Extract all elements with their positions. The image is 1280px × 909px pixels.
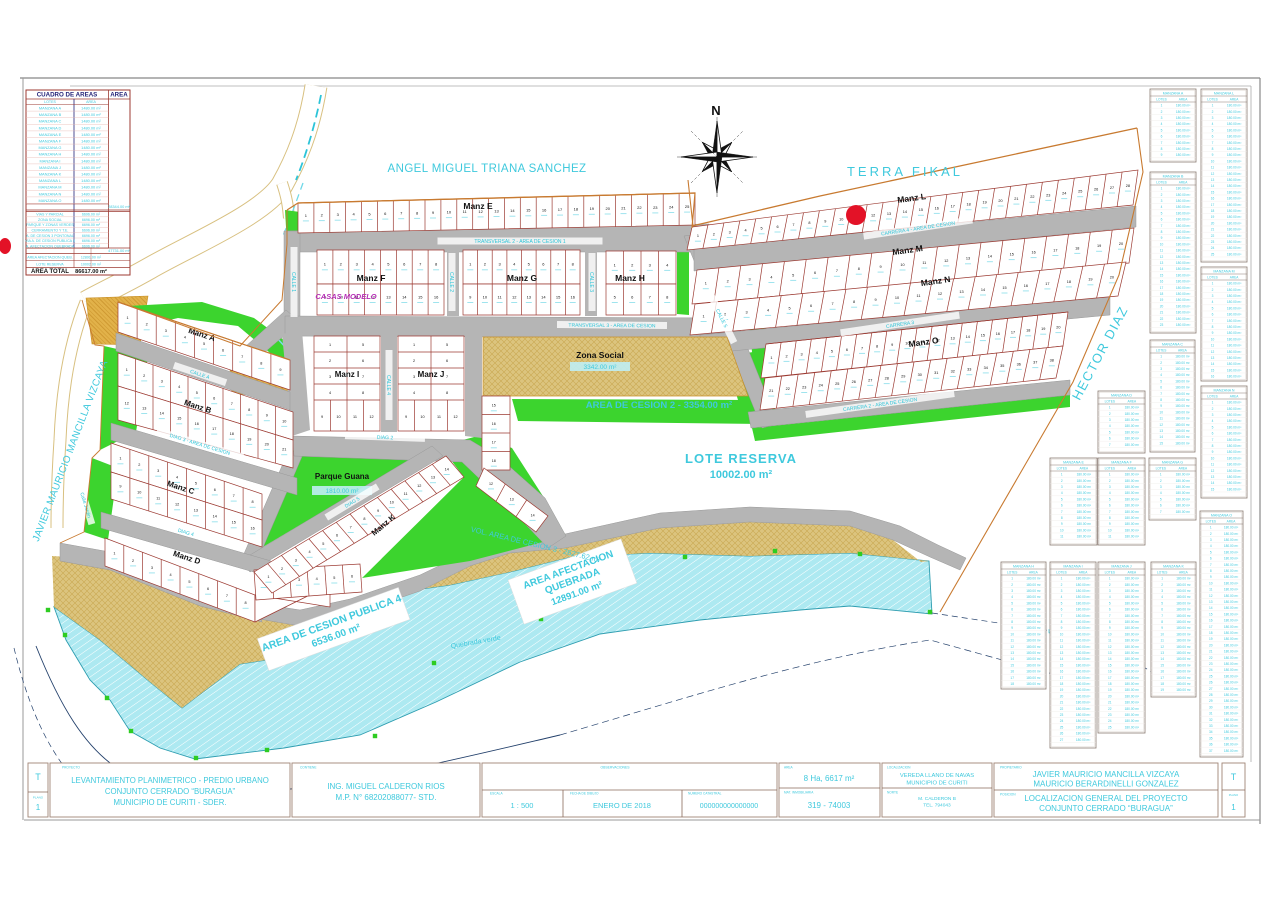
svg-text:2: 2 — [785, 354, 787, 358]
svg-text:180.00 m²: 180.00 m² — [1175, 417, 1189, 421]
svg-text:4: 4 — [1160, 491, 1162, 495]
svg-text:8: 8 — [446, 391, 448, 395]
svg-text:180.00 m²: 180.00 m² — [1224, 705, 1238, 709]
svg-text:1480.00 m²: 1480.00 m² — [81, 139, 101, 144]
svg-text:13: 13 — [510, 498, 514, 502]
svg-text:13: 13 — [527, 294, 532, 299]
svg-text:7: 7 — [1161, 614, 1163, 618]
svg-text:5: 5 — [1161, 211, 1163, 215]
svg-text:180.00 m²: 180.00 m² — [1176, 497, 1190, 501]
svg-text:5: 5 — [1160, 497, 1162, 501]
svg-text:180.00 m²: 180.00 m² — [1175, 410, 1189, 414]
svg-text:FECHA DE DIBUJO: FECHA DE DIBUJO — [570, 792, 599, 796]
svg-text:19: 19 — [1041, 327, 1045, 331]
svg-text:180.00 m²: 180.00 m² — [1224, 526, 1238, 530]
svg-text:TRANSVERSAL 3 - AREA DE CESION: TRANSVERSAL 3 - AREA DE CESION — [568, 323, 656, 330]
svg-text:9: 9 — [279, 368, 281, 372]
svg-text:180.00 m²: 180.00 m² — [1176, 657, 1190, 661]
svg-text:7: 7 — [1210, 563, 1212, 567]
svg-text:MANZANA I: MANZANA I — [40, 158, 61, 163]
svg-text:180.00 m²: 180.00 m² — [1227, 184, 1241, 188]
svg-text:13: 13 — [1159, 429, 1163, 433]
svg-text:11: 11 — [437, 415, 441, 419]
svg-text:31: 31 — [934, 371, 938, 375]
svg-text:4: 4 — [1011, 595, 1013, 599]
svg-text:15: 15 — [1209, 612, 1213, 616]
svg-text:MANZANA K: MANZANA K — [1163, 564, 1184, 568]
svg-text:4: 4 — [176, 475, 178, 479]
svg-text:TEL. 794043: TEL. 794043 — [923, 803, 951, 809]
svg-text:2: 2 — [1161, 110, 1163, 114]
svg-text:A. DE CESION 3 PONTONAL: A. DE CESION 3 PONTONAL — [26, 234, 74, 238]
svg-text:180.00 m²: 180.00 m² — [1076, 589, 1090, 593]
svg-text:180.00 m²: 180.00 m² — [1125, 632, 1139, 636]
svg-text:18: 18 — [1160, 682, 1164, 686]
svg-text:180.00 m²: 180.00 m² — [1224, 724, 1238, 728]
svg-text:7: 7 — [792, 223, 794, 227]
svg-text:12: 12 — [1209, 594, 1213, 598]
svg-text:5: 5 — [322, 542, 324, 546]
svg-text:180.00 m²: 180.00 m² — [1224, 600, 1238, 604]
svg-text:6: 6 — [336, 534, 338, 538]
svg-text:6696.00 m²: 6696.00 m² — [82, 234, 101, 238]
svg-text:24: 24 — [669, 204, 674, 209]
svg-text:1: 1 — [1160, 473, 1162, 477]
svg-text:14: 14 — [1160, 657, 1164, 661]
svg-text:AREA: AREA — [1127, 570, 1137, 574]
svg-text:180.00 m²: 180.00 m² — [1026, 657, 1040, 661]
svg-text:7: 7 — [836, 269, 838, 273]
svg-text:180.00 m²: 180.00 m² — [1224, 625, 1238, 629]
svg-text:15: 15 — [1211, 487, 1215, 491]
svg-text:26: 26 — [1209, 681, 1213, 685]
svg-text:000000000000000: 000000000000000 — [700, 803, 759, 810]
svg-text:180.00 m²: 180.00 m² — [1076, 626, 1090, 630]
svg-text:180.00 m²: 180.00 m² — [1227, 172, 1241, 176]
svg-text:11: 11 — [404, 492, 408, 496]
svg-text:12: 12 — [1060, 645, 1064, 649]
svg-text:180.00 m²: 180.00 m² — [1227, 178, 1241, 182]
svg-text:13: 13 — [494, 208, 499, 213]
svg-text:VIAS Y PARCIAL: VIAS Y PARCIAL — [36, 213, 64, 217]
svg-text:180.00 m²: 180.00 m² — [1224, 743, 1238, 747]
svg-text:29: 29 — [901, 375, 905, 379]
svg-text:1810.00 m²: 1810.00 m² — [326, 488, 360, 495]
svg-text:1: 1 — [1061, 577, 1063, 581]
svg-text:23: 23 — [1211, 240, 1215, 244]
svg-text:16: 16 — [996, 332, 1000, 336]
svg-text:16: 16 — [1211, 197, 1215, 201]
svg-text:180.00 m²: 180.00 m² — [1026, 620, 1040, 624]
svg-text:180.00 m²: 180.00 m² — [1227, 252, 1241, 256]
svg-text:4: 4 — [1212, 300, 1214, 304]
svg-text:16: 16 — [1160, 280, 1164, 284]
svg-text:180.00 m²: 180.00 m² — [1224, 544, 1238, 548]
svg-text:1: 1 — [1109, 577, 1111, 581]
svg-text:180.00 m²: 180.00 m² — [1077, 504, 1091, 508]
svg-text:180.00 m²: 180.00 m² — [1125, 645, 1139, 649]
svg-text:25: 25 — [1209, 674, 1213, 678]
svg-text:180.00 m²: 180.00 m² — [1224, 594, 1238, 598]
svg-text:180.00 m²: 180.00 m² — [1176, 261, 1190, 265]
svg-text:POSICION: POSICION — [1000, 793, 1016, 797]
svg-text:11: 11 — [1011, 639, 1015, 643]
svg-text:180.00 m²: 180.00 m² — [1176, 193, 1190, 197]
svg-text:20: 20 — [1056, 326, 1060, 330]
svg-text:4: 4 — [770, 275, 772, 279]
svg-text:9: 9 — [377, 509, 379, 513]
svg-text:8: 8 — [853, 300, 855, 304]
svg-text:AREA: AREA — [1179, 570, 1189, 574]
svg-text:180.00 m²: 180.00 m² — [1227, 319, 1241, 323]
svg-text:180.00 m²: 180.00 m² — [1176, 485, 1190, 489]
svg-text:180.00 m²: 180.00 m² — [1076, 670, 1090, 674]
svg-text:NORTE: NORTE — [887, 791, 898, 795]
svg-text:3: 3 — [161, 380, 163, 384]
svg-text:180.00 m²: 180.00 m² — [1227, 481, 1241, 485]
svg-text:9: 9 — [1061, 626, 1063, 630]
svg-text:15: 15 — [1211, 368, 1215, 372]
svg-text:27: 27 — [1209, 687, 1213, 691]
svg-text:15: 15 — [1002, 286, 1006, 290]
svg-text:6: 6 — [222, 348, 224, 352]
svg-text:18: 18 — [574, 207, 579, 212]
svg-text:180.00 m²: 180.00 m² — [1076, 694, 1090, 698]
svg-text:180.00 m²: 180.00 m² — [1227, 190, 1241, 194]
svg-text:25: 25 — [685, 204, 690, 209]
svg-text:LOTE RESERVA: LOTE RESERVA — [36, 263, 64, 267]
svg-text:1: 1 — [413, 343, 415, 347]
svg-text:7: 7 — [1212, 438, 1214, 442]
svg-text:Manz G: Manz G — [507, 273, 538, 283]
svg-text:5: 5 — [195, 482, 197, 486]
svg-text:180.00 m²: 180.00 m² — [1026, 639, 1040, 643]
svg-text:MANZANA M: MANZANA M — [1213, 269, 1234, 273]
svg-text:180.00 m²: 180.00 m² — [1227, 469, 1241, 473]
svg-text:23: 23 — [1209, 662, 1213, 666]
svg-text:4: 4 — [309, 550, 311, 554]
svg-text:10002.00 m²: 10002.00 m² — [710, 469, 773, 481]
svg-text:ENERO DE 2018: ENERO DE 2018 — [593, 801, 651, 810]
svg-text:3: 3 — [1161, 116, 1163, 120]
svg-text:5: 5 — [761, 227, 763, 231]
svg-text:180.00 m²: 180.00 m² — [1176, 141, 1190, 145]
svg-text:180.00 m²: 180.00 m² — [1227, 438, 1241, 442]
svg-text:180.00 m²: 180.00 m² — [1176, 479, 1190, 483]
svg-text:Parque Guana: Parque Guana — [315, 472, 370, 481]
svg-text:13: 13 — [142, 406, 146, 410]
svg-text:21: 21 — [1160, 311, 1164, 315]
svg-text:ING. MIGUEL CALDERON RIOS: ING. MIGUEL CALDERON RIOS — [327, 782, 445, 791]
svg-text:180.00 m²: 180.00 m² — [1125, 682, 1139, 686]
svg-text:180.00 m²: 180.00 m² — [1125, 657, 1139, 661]
svg-text:30: 30 — [1209, 705, 1213, 709]
svg-text:180.00 m²: 180.00 m² — [1076, 645, 1090, 649]
svg-text:4: 4 — [1212, 122, 1214, 126]
svg-text:7: 7 — [233, 494, 235, 498]
svg-text:VEREDA LLANO DE NAVAS: VEREDA LLANO DE NAVAS — [900, 773, 974, 779]
svg-text:32: 32 — [1209, 718, 1213, 722]
svg-text:15: 15 — [526, 208, 531, 213]
svg-text:180.00 m²: 180.00 m² — [1125, 430, 1139, 434]
svg-text:30: 30 — [918, 373, 922, 377]
svg-text:35: 35 — [1209, 736, 1213, 740]
svg-text:180.00 m²: 180.00 m² — [1125, 479, 1139, 483]
svg-text:16: 16 — [1024, 284, 1028, 288]
svg-text:9: 9 — [405, 415, 407, 419]
svg-text:8: 8 — [363, 517, 365, 521]
svg-text:2: 2 — [132, 559, 134, 563]
svg-text:14: 14 — [1211, 184, 1215, 188]
svg-text:180.00 m²: 180.00 m² — [1026, 608, 1040, 612]
svg-text:OBSERVACIONES: OBSERVACIONES — [600, 766, 630, 770]
svg-text:14: 14 — [1010, 657, 1014, 661]
svg-text:DIAG 2: DIAG 2 — [377, 435, 394, 442]
svg-text:180.00 m²: 180.00 m² — [1224, 643, 1238, 647]
svg-text:180.00 m²: 180.00 m² — [1227, 197, 1241, 201]
svg-text:13: 13 — [1108, 651, 1112, 655]
svg-text:8: 8 — [1212, 444, 1214, 448]
svg-text:7: 7 — [231, 402, 233, 406]
svg-text:9: 9 — [1011, 626, 1013, 630]
svg-text:4: 4 — [184, 336, 186, 340]
svg-text:1480.00 m²: 1480.00 m² — [81, 112, 101, 117]
svg-text:180.00 m²: 180.00 m² — [1176, 230, 1190, 234]
svg-text:13: 13 — [1060, 651, 1064, 655]
svg-text:PROPIETARIO: PROPIETARIO — [1000, 766, 1022, 770]
svg-text:7: 7 — [1061, 614, 1063, 618]
svg-text:180.00 m²: 180.00 m² — [1224, 712, 1238, 716]
svg-text:180.00 m²: 180.00 m² — [1125, 437, 1139, 441]
svg-text:180.00 m²: 180.00 m² — [1176, 224, 1190, 228]
svg-text:10: 10 — [483, 294, 488, 299]
svg-text:180.00 m²: 180.00 m² — [1125, 577, 1139, 581]
svg-text:6: 6 — [810, 304, 812, 308]
svg-text:18: 18 — [492, 459, 496, 463]
svg-text:13: 13 — [1211, 178, 1215, 182]
svg-text:5: 5 — [1011, 601, 1013, 605]
svg-text:1: 1 — [1231, 803, 1236, 812]
svg-text:19: 19 — [1088, 278, 1092, 282]
svg-text:MANZANA C: MANZANA C — [39, 119, 62, 124]
svg-text:180.00 m²: 180.00 m² — [1076, 583, 1090, 587]
svg-text:180.00 m²: 180.00 m² — [1077, 522, 1091, 526]
svg-text:14: 14 — [1211, 362, 1215, 366]
svg-text:9: 9 — [1109, 626, 1111, 630]
svg-text:14: 14 — [160, 412, 164, 416]
svg-text:34: 34 — [984, 366, 988, 370]
svg-text:180.00 m²: 180.00 m² — [1227, 306, 1241, 310]
svg-text:3: 3 — [1161, 199, 1163, 203]
svg-text:4: 4 — [1109, 491, 1111, 495]
svg-text:20: 20 — [1211, 221, 1215, 225]
svg-text:180.00 m²: 180.00 m² — [1176, 286, 1190, 290]
svg-text:1: 1 — [703, 314, 705, 318]
svg-text:8: 8 — [1212, 147, 1214, 151]
svg-text:MUNICIPIO DE CURITI - SDER.: MUNICIPIO DE CURITI - SDER. — [113, 798, 226, 807]
svg-text:17: 17 — [492, 441, 496, 445]
svg-text:180.00 m²: 180.00 m² — [1125, 473, 1139, 477]
svg-text:1: 1 — [1161, 577, 1163, 581]
svg-text:32: 32 — [951, 369, 955, 373]
svg-text:1: 1 — [1212, 104, 1214, 108]
svg-text:12: 12 — [944, 259, 948, 263]
svg-text:MAT. INMOBILIARIA: MAT. INMOBILIARIA — [784, 791, 814, 795]
svg-text:22: 22 — [1160, 317, 1164, 321]
svg-text:CONJUNTO CERRADO “BURAGUA”: CONJUNTO CERRADO “BURAGUA” — [1039, 804, 1173, 813]
svg-text:14: 14 — [1108, 657, 1112, 661]
svg-text:180.00 m²: 180.00 m² — [1227, 432, 1241, 436]
svg-text:5: 5 — [1161, 128, 1163, 132]
svg-text:AREA: AREA — [784, 766, 794, 770]
svg-text:12: 12 — [453, 415, 457, 419]
svg-text:9: 9 — [874, 298, 876, 302]
svg-text:11: 11 — [922, 261, 926, 265]
svg-text:3342.00 m²: 3342.00 m² — [584, 364, 618, 371]
svg-text:1: 1 — [1210, 526, 1212, 530]
svg-text:10: 10 — [1159, 410, 1163, 414]
svg-text:13: 13 — [887, 212, 891, 216]
svg-text:180.00 m²: 180.00 m² — [1227, 356, 1241, 360]
svg-text:4: 4 — [1212, 419, 1214, 423]
svg-text:180.00 m²: 180.00 m² — [1227, 141, 1241, 145]
svg-text:1480.00 m²: 1480.00 m² — [81, 191, 101, 196]
svg-text:5: 5 — [1109, 497, 1111, 501]
svg-text:180.00 m²: 180.00 m² — [1125, 535, 1139, 539]
svg-text:180.00 m²: 180.00 m² — [1176, 632, 1190, 636]
svg-text:16: 16 — [1209, 619, 1213, 623]
svg-text:18: 18 — [1010, 682, 1014, 686]
svg-text:3: 3 — [1109, 485, 1111, 489]
svg-text:1: 1 — [119, 457, 121, 461]
svg-text:17: 17 — [1060, 676, 1064, 680]
svg-text:14: 14 — [966, 335, 970, 339]
svg-text:16: 16 — [434, 294, 439, 299]
svg-text:13: 13 — [966, 257, 970, 261]
svg-text:LOTES: LOTES — [1156, 348, 1166, 352]
svg-text:180.00 m²: 180.00 m² — [1176, 199, 1190, 203]
svg-text:180.00 m²: 180.00 m² — [1076, 657, 1090, 661]
svg-text:180.00 m²: 180.00 m² — [1176, 626, 1190, 630]
svg-text:19: 19 — [1060, 688, 1064, 692]
svg-text:180.00 m²: 180.00 m² — [1176, 273, 1190, 277]
svg-text:10: 10 — [336, 415, 340, 419]
svg-text:1: 1 — [329, 343, 331, 347]
svg-text:14: 14 — [541, 294, 546, 299]
svg-text:180.00 m²: 180.00 m² — [1224, 650, 1238, 654]
svg-text:3: 3 — [1061, 589, 1063, 593]
svg-text:180.00 m²: 180.00 m² — [1224, 687, 1238, 691]
svg-text:11: 11 — [1211, 166, 1215, 170]
svg-text:PLANO: PLANO — [1229, 793, 1239, 797]
svg-text:6: 6 — [1109, 608, 1111, 612]
svg-text:180.00 m²: 180.00 m² — [1227, 401, 1241, 405]
svg-text:180.00 m²: 180.00 m² — [1125, 504, 1139, 508]
svg-text:29: 29 — [1209, 699, 1213, 703]
svg-text:180.00 m²: 180.00 m² — [1077, 535, 1091, 539]
svg-text:180.00 m²: 180.00 m² — [1026, 682, 1040, 686]
svg-text:4: 4 — [170, 573, 172, 577]
svg-text:2: 2 — [1161, 193, 1163, 197]
svg-text:7: 7 — [1109, 443, 1111, 447]
svg-text:5: 5 — [333, 576, 335, 580]
svg-text:18: 18 — [966, 203, 970, 207]
svg-text:5: 5 — [1061, 497, 1063, 501]
svg-text:180.00 m²: 180.00 m² — [1176, 187, 1190, 191]
svg-text:6: 6 — [1011, 608, 1013, 612]
svg-text:3: 3 — [157, 469, 159, 473]
svg-text:180.00 m²: 180.00 m² — [1125, 707, 1139, 711]
svg-text:NUMERO CATASTRAL: NUMERO CATASTRAL — [688, 792, 722, 796]
svg-text:180.00 m²: 180.00 m² — [1224, 693, 1238, 697]
svg-text:AREA: AREA — [1179, 97, 1189, 101]
svg-text:9: 9 — [1160, 404, 1162, 408]
svg-text:AREA TOTAL: AREA TOTAL — [31, 269, 69, 275]
svg-text:6: 6 — [362, 359, 364, 363]
svg-text:2: 2 — [1061, 583, 1063, 587]
svg-text:180.00 m²: 180.00 m² — [1175, 423, 1189, 427]
svg-text:5: 5 — [203, 342, 205, 346]
svg-text:180.00 m²: 180.00 m² — [1026, 663, 1040, 667]
svg-text:180.00 m²: 180.00 m² — [1176, 304, 1190, 308]
svg-text:2: 2 — [143, 374, 145, 378]
svg-text:21: 21 — [1014, 197, 1018, 201]
svg-text:180.00 m²: 180.00 m² — [1077, 516, 1091, 520]
svg-text:180.00 m²: 180.00 m² — [1227, 325, 1241, 329]
svg-text:21: 21 — [621, 206, 626, 211]
svg-text:12: 12 — [1211, 350, 1215, 354]
svg-text:6: 6 — [1210, 557, 1212, 561]
svg-text:180.00 m²: 180.00 m² — [1125, 688, 1139, 692]
svg-text:180.00 m²: 180.00 m² — [1175, 398, 1189, 402]
svg-text:1480.00 m²: 1480.00 m² — [81, 152, 101, 157]
svg-text:2: 2 — [1061, 479, 1063, 483]
svg-text:9: 9 — [1061, 522, 1063, 526]
svg-text:12: 12 — [1160, 645, 1164, 649]
svg-text:180.00 m²: 180.00 m² — [1224, 699, 1238, 703]
svg-text:180.00 m²: 180.00 m² — [1175, 355, 1189, 359]
svg-text:17: 17 — [1160, 676, 1164, 680]
svg-text:20: 20 — [1119, 242, 1123, 246]
svg-text:15: 15 — [1060, 663, 1064, 667]
svg-text:12: 12 — [1211, 469, 1215, 473]
svg-text:3: 3 — [165, 329, 167, 333]
svg-text:4: 4 — [767, 308, 769, 312]
svg-text:8: 8 — [1011, 620, 1013, 624]
svg-text:9: 9 — [119, 485, 121, 489]
svg-text:180.00 m²: 180.00 m² — [1176, 242, 1190, 246]
svg-text:180.00 m²: 180.00 m² — [1224, 538, 1238, 542]
svg-text:180.00 m²: 180.00 m² — [1227, 350, 1241, 354]
svg-text:LOCALIZACION: LOCALIZACION — [887, 766, 911, 770]
svg-text:180.00 m²: 180.00 m² — [1224, 749, 1238, 753]
svg-text:12: 12 — [1160, 255, 1164, 259]
svg-text:8: 8 — [362, 391, 364, 395]
svg-text:8: 8 — [808, 221, 810, 225]
svg-text:28: 28 — [1126, 184, 1130, 188]
svg-text:12: 12 — [1211, 172, 1215, 176]
svg-text:3: 3 — [1160, 367, 1162, 371]
svg-text:6: 6 — [1161, 608, 1163, 612]
svg-text:8: 8 — [260, 361, 262, 365]
svg-text:1: 1 — [113, 552, 115, 556]
svg-text:15: 15 — [1159, 441, 1163, 445]
svg-text:10: 10 — [1211, 337, 1215, 341]
svg-text:180.00 m²: 180.00 m² — [1125, 701, 1139, 705]
svg-text:21: 21 — [1211, 228, 1215, 232]
svg-text:10: 10 — [1010, 632, 1014, 636]
svg-text:180.00 m²: 180.00 m² — [1176, 639, 1190, 643]
